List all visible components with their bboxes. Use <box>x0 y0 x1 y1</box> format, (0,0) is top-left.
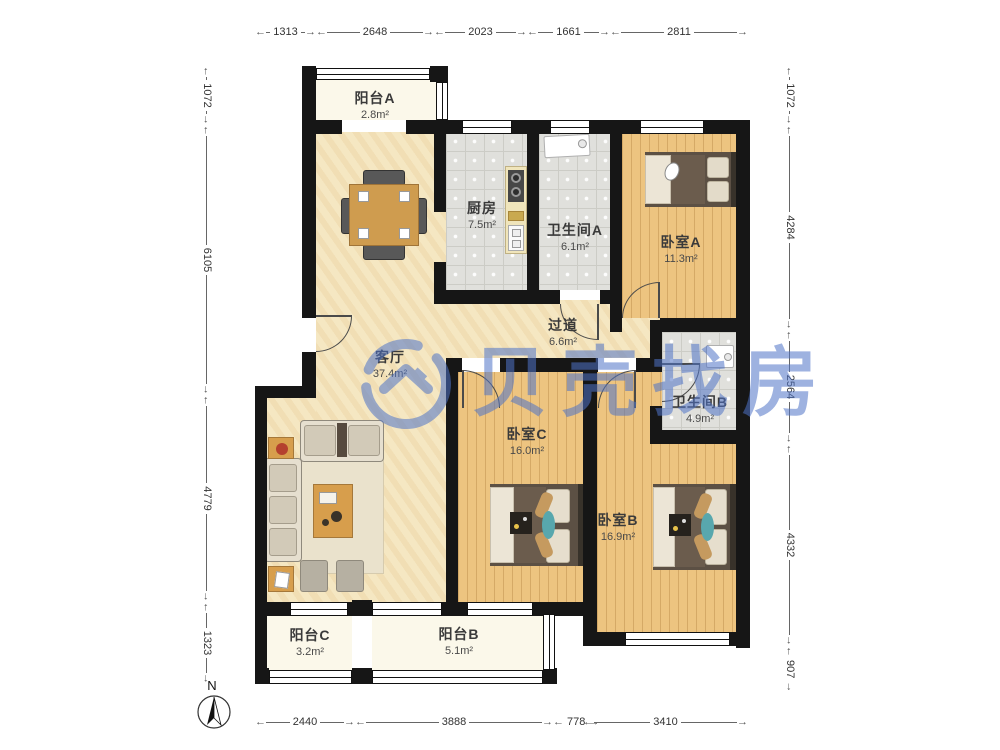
wall <box>600 290 622 304</box>
room-label-bath-b: 卫生间B4.9m² <box>650 392 750 425</box>
sofa-cushion <box>304 425 336 456</box>
washer-icon <box>543 134 590 158</box>
window <box>436 82 448 120</box>
window <box>372 602 442 616</box>
dining-chair <box>363 244 405 260</box>
burner <box>511 187 521 197</box>
book <box>274 571 290 589</box>
bath-b-door-leaf <box>662 363 700 365</box>
wall-corner <box>352 668 372 684</box>
place-setting <box>399 228 410 239</box>
wall <box>736 120 750 648</box>
window <box>550 120 590 134</box>
sofa-cushion <box>269 464 297 492</box>
dim-segment: ←2023→ <box>434 24 527 40</box>
dim-segment: ←778→ <box>553 714 583 730</box>
dim-segment: ←1661→ <box>527 24 610 40</box>
window <box>625 632 730 646</box>
window <box>467 602 533 616</box>
window <box>372 670 543 684</box>
plant-pot <box>276 443 288 455</box>
wall <box>650 430 748 444</box>
place-setting <box>358 228 369 239</box>
wall-corner <box>543 668 557 684</box>
wall <box>636 358 662 372</box>
sofa <box>300 420 384 462</box>
wall-corner <box>430 66 448 82</box>
dining-table <box>349 184 419 246</box>
sink-basin <box>512 240 521 248</box>
chaise-sofa <box>264 458 302 562</box>
side-table <box>268 566 294 592</box>
wall <box>255 602 290 616</box>
dim-segment: ←907→ <box>782 646 798 688</box>
wall-corner <box>352 600 372 616</box>
dim-segment: ←3410→ <box>583 714 748 730</box>
compass-n-label: N <box>196 678 228 693</box>
wall-corner <box>255 668 269 684</box>
room-label-balcony-c: 阳台C3.2m² <box>260 625 360 658</box>
dim-segment: ←4332→ <box>782 444 798 646</box>
dim-segment: ←2440→ <box>255 714 355 730</box>
dot <box>673 526 678 531</box>
dining-set <box>341 170 427 260</box>
bed-tray <box>510 512 532 534</box>
compass: N <box>196 678 228 735</box>
dot <box>523 517 527 521</box>
pillow <box>707 157 729 178</box>
dim-segment: ←2811→ <box>610 24 748 40</box>
dim-segment: ←1313→ <box>255 24 316 40</box>
window <box>640 120 704 134</box>
side-table <box>268 437 294 459</box>
ottoman <box>336 560 364 592</box>
wall <box>583 632 625 646</box>
wall <box>446 602 467 616</box>
sofa-cushion <box>269 496 297 524</box>
coffee-table <box>313 484 353 538</box>
dim-segment: ←1323→ <box>199 602 215 684</box>
bed-a <box>645 152 737 207</box>
dim-segment: ←4284→ <box>782 125 798 330</box>
wall <box>446 372 458 602</box>
burner <box>511 173 521 183</box>
entry-door-leaf <box>316 315 352 317</box>
dim-segment: ←1072→ <box>782 66 798 125</box>
washer-door <box>724 353 732 361</box>
window <box>290 602 348 616</box>
window <box>462 120 512 134</box>
wall <box>255 392 267 608</box>
dim-segment: ←4779→ <box>199 395 215 602</box>
wall <box>730 632 750 646</box>
room-label-kitchen: 厨房7.5m² <box>432 198 532 231</box>
room-label-bed-b: 卧室B16.9m² <box>568 510 668 543</box>
dim-segment: ←2564→ <box>782 330 798 444</box>
dot <box>514 524 519 529</box>
pillow <box>707 181 729 202</box>
wall <box>302 120 316 318</box>
bed-tray <box>669 514 691 536</box>
window <box>543 614 555 670</box>
dot <box>682 519 686 523</box>
floorplan-canvas: ←1313→ ←2648→ ←2023→ ←1661→ ←2811→ ←2440… <box>0 0 1000 750</box>
cushion <box>701 513 714 541</box>
tray <box>319 492 337 504</box>
cushion <box>542 511 555 539</box>
washer-icon <box>706 345 734 368</box>
window <box>316 68 430 80</box>
washer-door <box>578 139 587 148</box>
ottoman <box>300 560 328 592</box>
bed-a-door-leaf <box>658 282 660 318</box>
place-setting <box>399 191 410 202</box>
wall <box>302 66 316 128</box>
wall <box>650 320 748 332</box>
wall <box>500 358 598 372</box>
room-label-bed-c: 卧室C16.0m² <box>477 424 577 457</box>
compass-icon <box>196 694 232 730</box>
dim-segment: ←2648→ <box>316 24 434 40</box>
window <box>269 670 352 684</box>
room-label-bed-a: 卧室A11.3m² <box>631 232 731 265</box>
room-label-balcony-b: 阳台B5.1m² <box>409 624 509 657</box>
sofa-console <box>337 423 347 457</box>
sofa-cushion <box>269 528 297 556</box>
wall <box>316 120 342 134</box>
dim-segment: ←1072→ <box>199 66 215 125</box>
room-label-living: 客厅37.4m² <box>340 347 440 380</box>
sofa-cushion <box>348 425 380 456</box>
bed-c-door-leaf <box>462 370 464 408</box>
room-label-bath-a: 卫生间A6.1m² <box>525 220 625 253</box>
bowl <box>331 511 342 522</box>
room-label-balcony-a: 阳台A2.8m² <box>325 88 425 121</box>
bed-b-door-leaf <box>634 370 636 408</box>
room-label-hallway: 过道6.6m² <box>513 315 613 348</box>
bowl <box>322 519 329 526</box>
wall <box>446 358 462 372</box>
place-setting <box>358 191 369 202</box>
dim-segment: ←6105→ <box>199 125 215 395</box>
dim-segment: ←3888→ <box>355 714 553 730</box>
wall <box>434 290 560 304</box>
